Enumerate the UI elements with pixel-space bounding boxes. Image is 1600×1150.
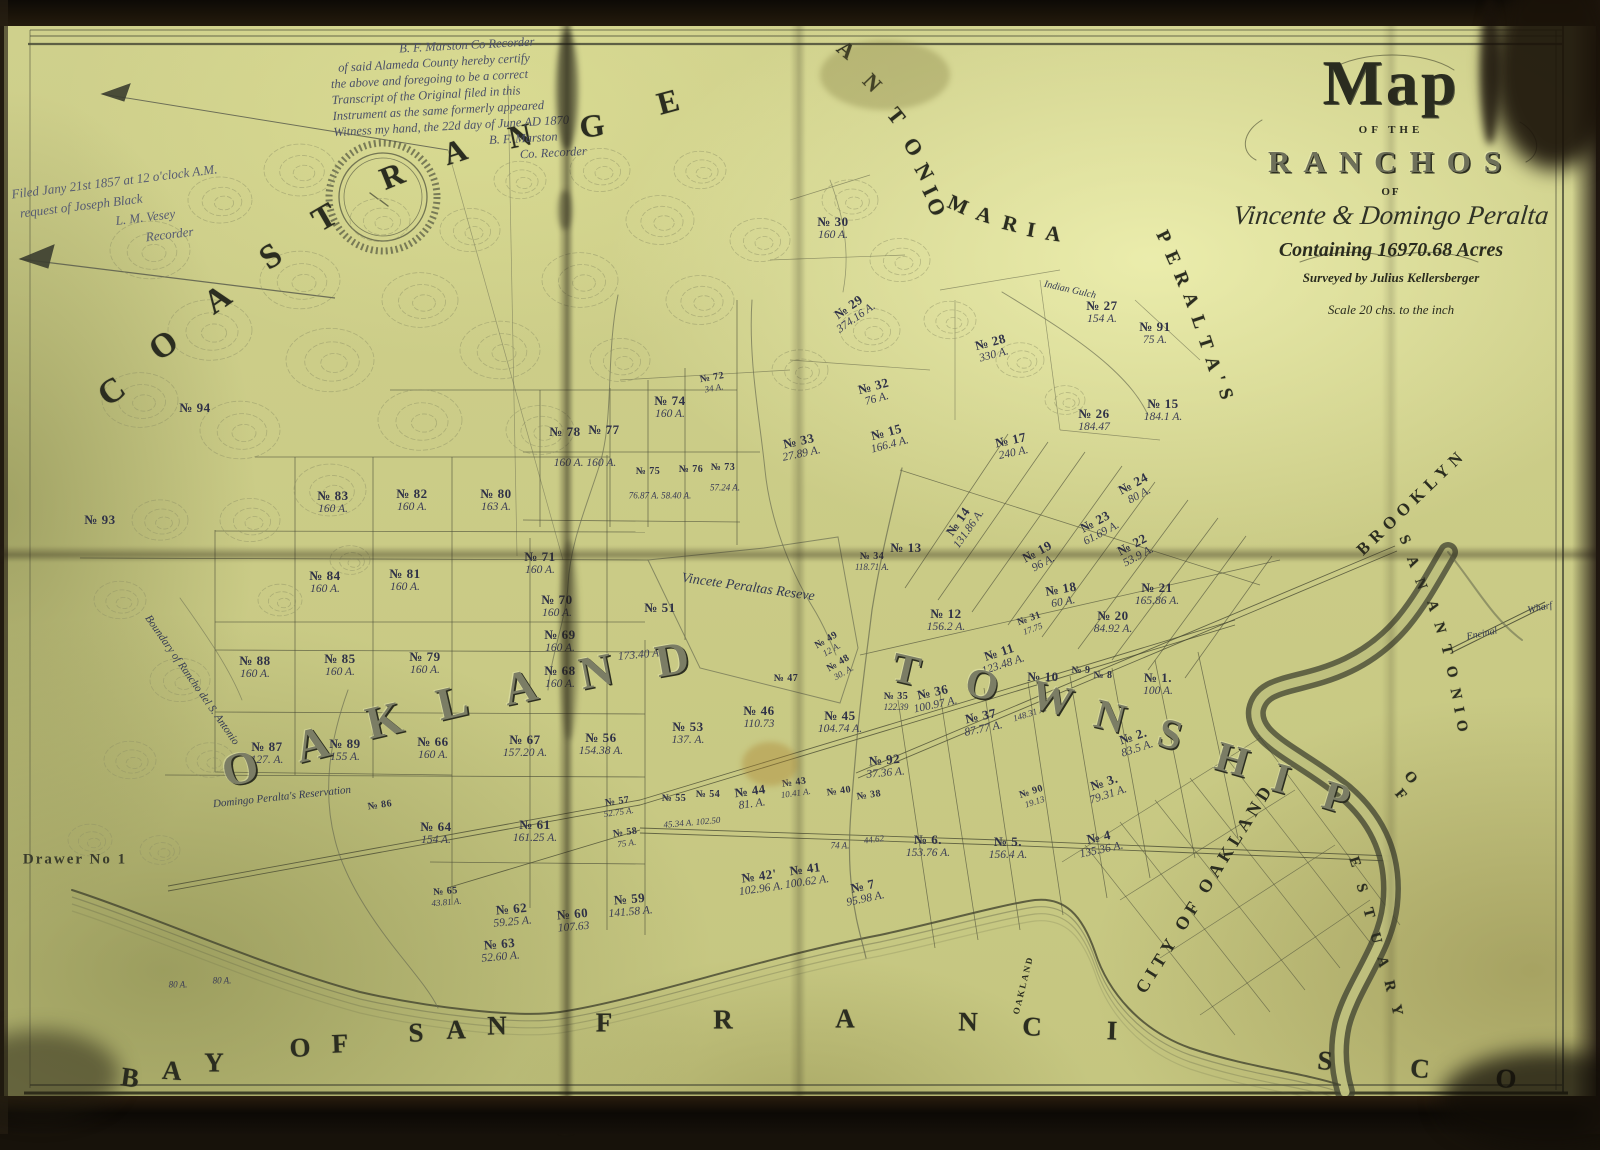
photograph-of-historical-map: { "title_block": { "map_word": "Map", "o… <box>0 0 1600 1134</box>
title-surveyor: Surveyed by Julius Kellersberger <box>1225 270 1557 286</box>
title-scale: Scale 20 chs. to the inch <box>1225 302 1557 318</box>
title-acreage: Containing 16970.68 Acres <box>1225 239 1557 262</box>
title-ranchos: RANCHOS <box>1225 144 1557 180</box>
map-title-word: Map <box>1225 46 1557 120</box>
title-of-the: OF THE <box>1225 124 1557 136</box>
title-of: OF <box>1225 186 1557 198</box>
title-cartouche: Map OF THE RANCHOS OF Vincente & Domingo… <box>1225 46 1557 318</box>
title-owners: Vincente & Domingo Peralta <box>1223 200 1558 231</box>
